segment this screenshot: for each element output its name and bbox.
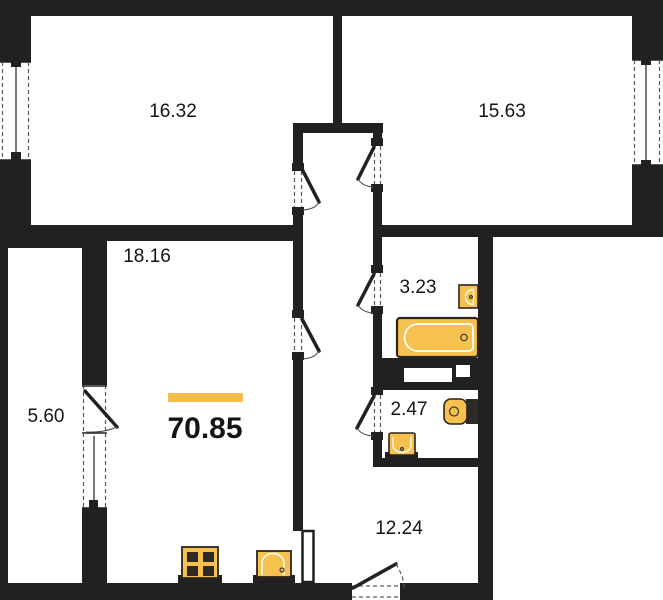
area-label-wc: 2.47 — [391, 399, 428, 420]
door-living-room — [292, 310, 319, 360]
balcony-window — [82, 433, 107, 508]
entrance-door — [352, 564, 404, 597]
area-label-room-top-right: 15.63 — [478, 101, 526, 122]
total-area-label: 70.85 — [167, 412, 242, 445]
kitchen-duct — [303, 531, 314, 582]
floor-plan-drawing: 16.32 15.63 18.16 5.60 3.23 2.47 12.24 7… — [0, 0, 663, 600]
area-label-bathroom: 3.23 — [400, 277, 437, 298]
door-room-top-left — [292, 163, 319, 215]
door-bathroom — [358, 265, 383, 314]
area-label-hallway: 12.24 — [375, 518, 423, 539]
bathtub-icon — [397, 318, 478, 357]
bathroom-sink-icon — [459, 285, 478, 308]
total-area-accent-bar — [168, 393, 243, 402]
window-left — [0, 59, 31, 160]
area-label-balcony: 5.60 — [28, 406, 65, 427]
area-label-living-room: 18.16 — [123, 246, 171, 267]
stove-icon — [178, 547, 222, 585]
balcony-door — [82, 385, 117, 433]
wc-sink-icon — [385, 433, 418, 462]
floor-plan: 16.32 15.63 18.16 5.60 3.23 2.47 12.24 7… — [0, 0, 663, 600]
walls — [0, 0, 663, 600]
door-wc — [357, 387, 383, 440]
door-room-top-right — [358, 138, 383, 192]
kitchen-sink-icon — [253, 551, 295, 585]
area-label-room-top-left: 16.32 — [149, 101, 197, 122]
toilet-icon — [444, 399, 478, 424]
window-right — [632, 57, 663, 168]
